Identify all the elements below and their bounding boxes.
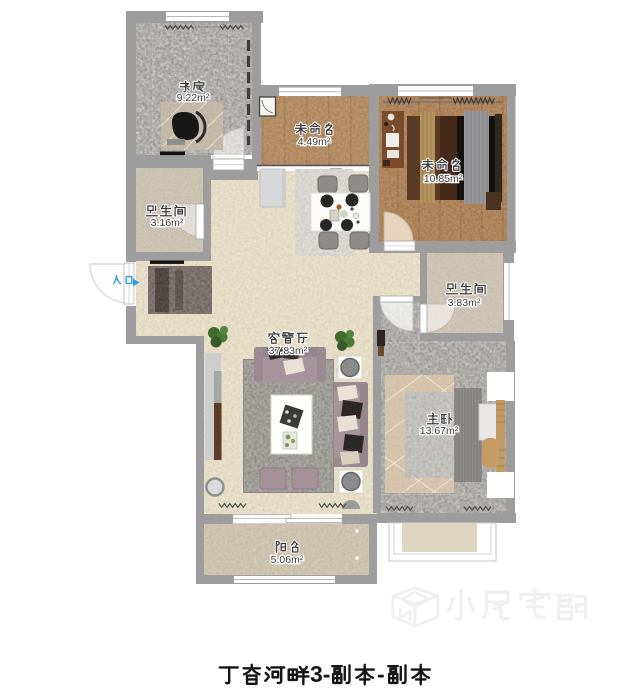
svg-text:10.85m²: 10.85m²: [424, 173, 463, 185]
svg-text:9.22m²: 9.22m²: [177, 92, 210, 104]
svg-text:-: -: [377, 661, 385, 687]
svg-text:3-: 3-: [310, 661, 330, 687]
svg-text:37.83m²: 37.83m²: [269, 345, 308, 357]
svg-text:13.67m²: 13.67m²: [420, 425, 459, 437]
svg-text:3.16m²: 3.16m²: [151, 217, 184, 229]
svg-text:5.06m²: 5.06m²: [271, 554, 304, 566]
svg-text:3.83m²: 3.83m²: [448, 297, 481, 309]
svg-text:4.49m²: 4.49m²: [298, 136, 331, 148]
